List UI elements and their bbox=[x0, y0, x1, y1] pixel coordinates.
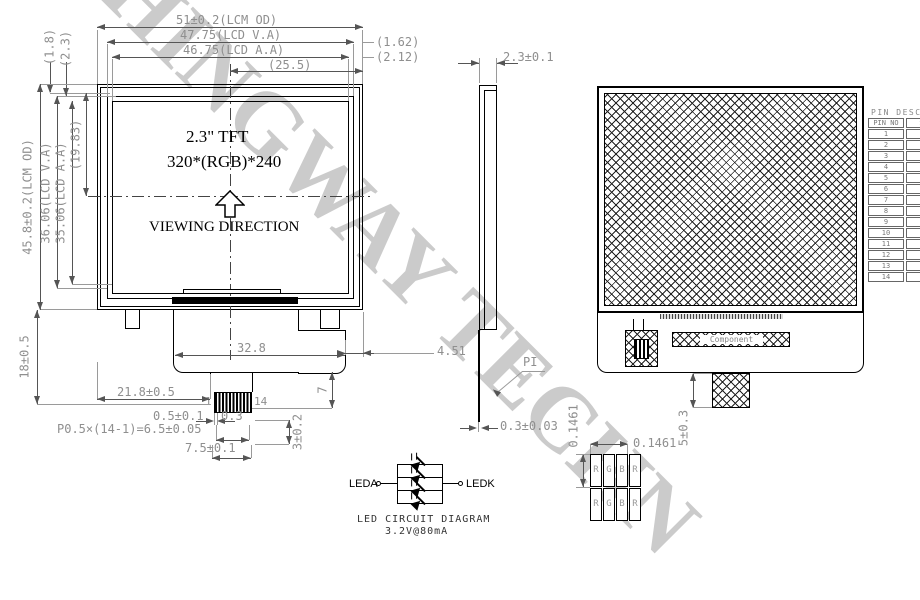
arrowhead bbox=[54, 96, 60, 104]
led-cathode-label: LEDK bbox=[466, 478, 495, 490]
led-anode-lead bbox=[381, 483, 397, 484]
pin-no: 3 bbox=[868, 151, 904, 161]
dim-fpc-thickness: 0.3±0.03 bbox=[500, 420, 558, 433]
ext-line bbox=[37, 404, 210, 405]
dim-lcd-aa-width: 46.75(LCD A.A) bbox=[183, 44, 284, 57]
arrowhead bbox=[212, 455, 220, 461]
pin-table: PIN NOSYMBOL 1NC 2NC 3NC 4NC 5NC 6VSS 7V… bbox=[868, 118, 920, 283]
pin-symbol: CS bbox=[906, 228, 920, 238]
pin-no: 7 bbox=[868, 195, 904, 205]
dim-lcd-va-width: 47.75(LCD V.A) bbox=[180, 29, 281, 42]
trace-line bbox=[643, 319, 644, 330]
glass-ledge bbox=[183, 289, 281, 294]
arrowhead bbox=[590, 441, 598, 447]
ext-line bbox=[107, 44, 108, 96]
dim-pixel-pitch-h: 0.1461 bbox=[633, 437, 676, 450]
subpixel-cell: R bbox=[590, 488, 602, 521]
acf-bonding-bar bbox=[660, 314, 783, 319]
pin-no: 11 bbox=[868, 239, 904, 249]
pin-table-row: 1NC bbox=[868, 129, 920, 140]
dim-line bbox=[488, 428, 498, 429]
arrowhead bbox=[580, 479, 586, 487]
fpc-step-edge bbox=[298, 310, 299, 330]
pin-symbol: VSS bbox=[906, 184, 920, 194]
pin-symbol: NC bbox=[906, 140, 920, 150]
dim-line bbox=[37, 310, 38, 404]
fpc-label: PI bbox=[523, 356, 537, 369]
ext-line bbox=[252, 408, 332, 409]
arrowhead bbox=[481, 425, 489, 431]
dim-thickness: 2.3±0.1 bbox=[503, 51, 554, 64]
ext-line bbox=[353, 44, 354, 96]
cof-bar bbox=[172, 297, 298, 304]
ext-line bbox=[57, 96, 107, 97]
pin-no: 12 bbox=[868, 250, 904, 260]
arrowhead bbox=[469, 425, 477, 431]
arrowhead bbox=[83, 93, 89, 101]
pin-table-header-symbol: SYMBOL bbox=[906, 118, 920, 128]
ext-line bbox=[576, 454, 590, 455]
pin-table-row: 13A bbox=[868, 261, 920, 272]
dim-half-width: (25.5) bbox=[268, 59, 311, 72]
pin-no: 4 bbox=[868, 162, 904, 172]
mount-tab-left bbox=[125, 310, 140, 329]
dim-tail: 5±0.3 bbox=[677, 410, 690, 446]
subpixel-cell: R bbox=[629, 454, 641, 487]
pin-table-row: 14K bbox=[868, 272, 920, 283]
arrowhead bbox=[97, 24, 105, 30]
ext-line bbox=[97, 30, 98, 84]
arrowhead bbox=[175, 352, 183, 358]
pin-no: 13 bbox=[868, 261, 904, 271]
dim-connector-width: 7.5±0.1 bbox=[185, 442, 236, 455]
arrowhead bbox=[34, 310, 40, 318]
ext-line bbox=[50, 93, 110, 94]
arrowhead bbox=[329, 400, 335, 408]
ext-line bbox=[214, 413, 215, 425]
viewing-direction-label: VIEWING DIRECTION bbox=[149, 219, 299, 236]
dim-fpc-width: 32.8 bbox=[237, 342, 266, 355]
pin-table-row: 12VCC bbox=[868, 250, 920, 261]
pin-no: 14 bbox=[868, 272, 904, 282]
dim-lcd-va-height: 36.06(LCD V.A) bbox=[39, 142, 52, 243]
ext-line bbox=[249, 425, 250, 440]
ext-line bbox=[693, 407, 712, 408]
viewing-direction-arrow-icon bbox=[215, 190, 245, 222]
pin-table-row: 3NC bbox=[868, 151, 920, 162]
arrowhead bbox=[97, 396, 105, 402]
pin-symbol: NC bbox=[906, 162, 920, 172]
dim-lcm-height: 45.8±0.2(LCM OD) bbox=[21, 139, 34, 255]
pin-symbol: VST bbox=[906, 239, 920, 249]
arrowhead bbox=[363, 350, 371, 356]
ext-line bbox=[217, 413, 218, 425]
pin-symbol: VDD bbox=[906, 195, 920, 205]
dim-center-height: (19.83) bbox=[69, 120, 82, 171]
subpixel-cell: B bbox=[616, 488, 628, 521]
pin-symbol: VCC bbox=[906, 250, 920, 260]
pin-symbol: SCL bbox=[906, 217, 920, 227]
back-fpc-tail bbox=[712, 373, 750, 408]
arrowhead bbox=[206, 418, 214, 424]
ext-line bbox=[255, 420, 289, 421]
arrowhead bbox=[37, 302, 43, 310]
dim-pin-pitch: P0.5×(14-1)=6.5±0.05 bbox=[57, 423, 202, 436]
ext-line bbox=[57, 288, 107, 289]
pin-symbol: NC bbox=[906, 129, 920, 139]
arrowhead bbox=[69, 276, 75, 284]
arrowhead bbox=[47, 85, 53, 93]
pin-symbol: NC bbox=[906, 173, 920, 183]
arrowhead bbox=[243, 455, 251, 461]
pin-number-last: 14 bbox=[254, 396, 267, 408]
dim-top-margin-1: (1.8) bbox=[43, 29, 56, 65]
fpc-body bbox=[173, 310, 299, 373]
led-cathode-terminal bbox=[458, 481, 463, 486]
dim-edge-step: 4.51 bbox=[437, 345, 466, 358]
arrowhead bbox=[329, 372, 335, 380]
pin-no: 9 bbox=[868, 217, 904, 227]
side-fpc-tail bbox=[478, 330, 480, 422]
ext-line bbox=[216, 425, 217, 440]
ext-line bbox=[72, 284, 112, 285]
side-inner-layer bbox=[484, 90, 497, 330]
led-diode-icon bbox=[407, 492, 430, 515]
arrowhead bbox=[346, 39, 354, 45]
dim-pixel-pitch-v: 0.1461 bbox=[567, 404, 580, 447]
dim-neck-height: 7 bbox=[316, 386, 329, 393]
fpc-neck bbox=[210, 372, 253, 392]
pin-table-title: PIN DESCRIPTION bbox=[871, 108, 920, 117]
dim-top-margin-2: (2.3) bbox=[59, 31, 72, 67]
ext-line bbox=[112, 59, 113, 101]
subpixel-cell: G bbox=[603, 454, 615, 487]
pin-symbol: K bbox=[906, 272, 920, 282]
pin-table-row: 2NC bbox=[868, 140, 920, 151]
subpixel-cell: R bbox=[629, 488, 641, 521]
arrowhead bbox=[471, 60, 479, 66]
mount-tab-right bbox=[320, 310, 340, 329]
ext-line bbox=[210, 374, 211, 399]
ext-line bbox=[97, 362, 98, 399]
dim-pin-gap: 0.3 bbox=[221, 410, 243, 423]
pin-table-row: 4NC bbox=[868, 162, 920, 173]
arrowhead bbox=[355, 24, 363, 30]
pin-table-header: PIN NOSYMBOL bbox=[868, 118, 920, 129]
pin-no: 2 bbox=[868, 140, 904, 150]
side-fpc-tail-end bbox=[478, 422, 479, 432]
led-bus-left bbox=[397, 464, 398, 504]
driver-ic-stripes bbox=[634, 339, 649, 359]
arrowhead bbox=[202, 396, 210, 402]
arrowhead bbox=[355, 68, 363, 74]
arrowhead bbox=[34, 396, 40, 404]
leader-line bbox=[363, 57, 374, 58]
led-anode-label: LEDA bbox=[349, 478, 378, 490]
ext-line bbox=[40, 309, 97, 310]
arrowhead bbox=[83, 188, 89, 196]
pin-no: 5 bbox=[868, 173, 904, 183]
pin-no: 10 bbox=[868, 228, 904, 238]
pin-table-row: 7VDD bbox=[868, 195, 920, 206]
pin-no: 6 bbox=[868, 184, 904, 194]
arrowhead bbox=[37, 84, 43, 92]
pin-table-header-no: PIN NO bbox=[868, 118, 904, 128]
subpixel-cell: G bbox=[603, 488, 615, 521]
arrowhead bbox=[690, 373, 696, 381]
leader-line bbox=[522, 371, 545, 372]
arrowhead bbox=[54, 280, 60, 288]
dim-line bbox=[86, 93, 87, 196]
arrowhead bbox=[341, 54, 349, 60]
arrowhead bbox=[69, 101, 75, 109]
arrowhead bbox=[580, 454, 586, 462]
ext-line bbox=[251, 445, 252, 458]
pin-symbol: A bbox=[906, 261, 920, 271]
dim-aa-margin-right: (2.12) bbox=[376, 51, 419, 64]
dim-lcm-width: 51±0.2(LCM OD) bbox=[176, 14, 277, 27]
arrowhead bbox=[230, 68, 238, 74]
pin-table-row: 11VST bbox=[868, 239, 920, 250]
dim-connector-depth: 3±0.2 bbox=[291, 414, 304, 450]
pin-table-row: 5NC bbox=[868, 173, 920, 184]
pin-table-row: 6VSS bbox=[868, 184, 920, 195]
pin-table-row: 8SDA bbox=[868, 206, 920, 217]
ext-line bbox=[693, 373, 712, 374]
arrowhead bbox=[107, 39, 115, 45]
arrowhead bbox=[337, 350, 345, 356]
led-bus-right bbox=[442, 464, 443, 504]
leader-line bbox=[374, 353, 434, 354]
trace-line bbox=[633, 319, 634, 330]
leader-line bbox=[363, 42, 374, 43]
led-circuit-rating: 3.2V@80mA bbox=[385, 526, 448, 538]
ext-line bbox=[590, 444, 591, 454]
ext-line bbox=[479, 58, 480, 83]
led-circuit-caption: LED CIRCUIT DIAGRAM bbox=[357, 514, 490, 526]
arrowhead bbox=[63, 88, 69, 96]
ext-line bbox=[576, 487, 590, 488]
ext-line bbox=[348, 59, 349, 101]
dim-pin-offset: 21.8±0.5 bbox=[117, 386, 175, 399]
pin-table-row: 9SCL bbox=[868, 217, 920, 228]
ext-line bbox=[627, 444, 628, 454]
pin-no: 8 bbox=[868, 206, 904, 216]
subpixel-cell: R bbox=[590, 454, 602, 487]
lcd-module-datasheet-drawing: CHINGWAY TECHN 2.3" TFT 320*(RGB)*240 VI… bbox=[0, 0, 920, 600]
dim-va-margin-right: (1.62) bbox=[376, 36, 419, 49]
arrowhead bbox=[112, 54, 120, 60]
pin-table-row: 10CS bbox=[868, 228, 920, 239]
dim-lcd-aa-height: 35.06(LCD A.A) bbox=[54, 142, 67, 243]
resolution-label: 320*(RGB)*240 bbox=[167, 152, 281, 172]
ext-line bbox=[212, 445, 213, 458]
component-label: Component bbox=[700, 335, 763, 344]
display-type-label: 2.3" TFT bbox=[186, 127, 248, 147]
pin-symbol: SDA bbox=[906, 206, 920, 216]
dim-fpc-drop: 18±0.5 bbox=[18, 335, 31, 378]
ext-line bbox=[255, 444, 289, 445]
ext-line bbox=[40, 84, 97, 85]
back-hatch-area bbox=[604, 93, 857, 306]
arrowhead bbox=[241, 437, 249, 443]
pin-no: 1 bbox=[868, 129, 904, 139]
pin-symbol: NC bbox=[906, 151, 920, 161]
subpixel-cell: B bbox=[616, 454, 628, 487]
